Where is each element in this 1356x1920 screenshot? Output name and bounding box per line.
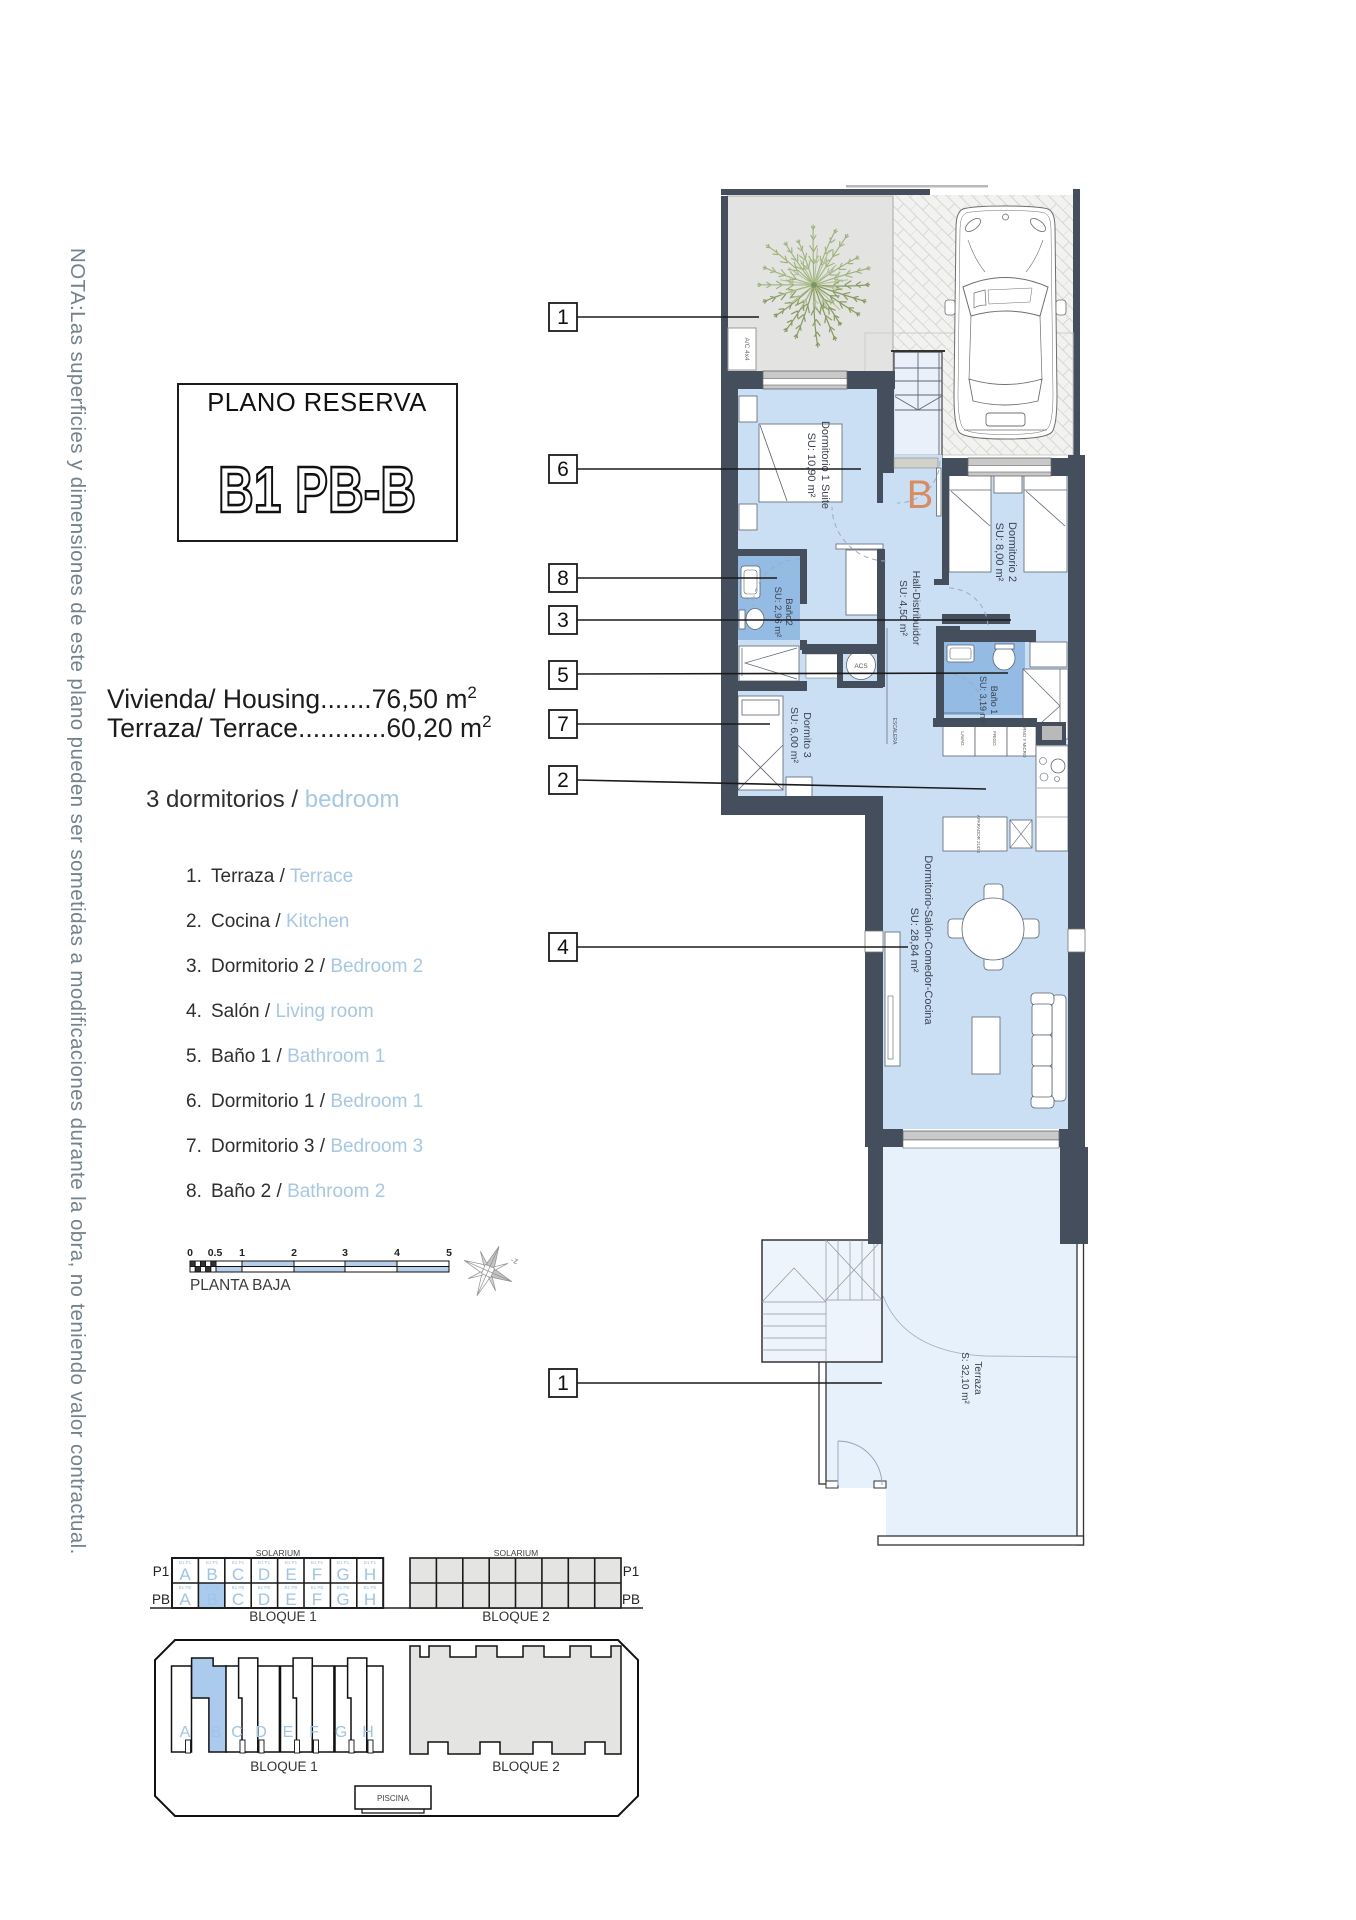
svg-text:SU: 10,90 m²: SU: 10,90 m²: [805, 433, 817, 498]
svg-text:Dormitorio 3 / Bedroom 3: Dormitorio 3 / Bedroom 3: [211, 1136, 423, 1157]
svg-text:5: 5: [557, 664, 569, 687]
svg-text:PLANTA BAJA: PLANTA BAJA: [190, 1277, 291, 1294]
svg-text:Dormitorio 2 / Bedroom 2: Dormitorio 2 / Bedroom 2: [211, 956, 423, 977]
svg-text:F: F: [309, 1724, 319, 1741]
svg-text:BLOQUE 2: BLOQUE 2: [482, 1609, 550, 1624]
svg-text:ESCALERA: ESCALERA: [891, 718, 897, 745]
svg-text:B1 PB: B1 PB: [311, 1585, 324, 1590]
svg-text:1: 1: [239, 1247, 245, 1259]
svg-text:8.: 8.: [186, 1181, 202, 1202]
svg-text:G: G: [335, 1724, 347, 1741]
svg-text:Terraza/ Terrace............60: Terraza/ Terrace............60,20 m2: [107, 712, 492, 743]
svg-text:3: 3: [342, 1247, 348, 1259]
svg-text:Terraza: Terraza: [972, 1361, 983, 1395]
svg-text:D: D: [258, 1590, 270, 1609]
svg-text:2: 2: [557, 769, 569, 792]
svg-text:SU: 8,00 m²: SU: 8,00 m²: [993, 523, 1005, 582]
svg-text:5.: 5.: [186, 1046, 202, 1067]
svg-text:Salón / Living room: Salón / Living room: [211, 1001, 374, 1022]
svg-text:SOLARIUM: SOLARIUM: [494, 1548, 538, 1558]
svg-text:B1 P1: B1 P1: [258, 1560, 271, 1565]
svg-text:E: E: [285, 1565, 296, 1584]
svg-text:B1 PB: B1 PB: [285, 1585, 298, 1590]
svg-text:G: G: [336, 1565, 349, 1584]
svg-text:H: H: [364, 1565, 376, 1584]
svg-text:-z: -z: [509, 1254, 520, 1266]
svg-text:Dormitorio-Salón-Comedor-Cocin: Dormitorio-Salón-Comedor-Cocina: [922, 855, 934, 1025]
svg-text:SU: 3,19 m²: SU: 3,19 m²: [978, 676, 988, 724]
svg-text:Vivienda/ Housing.......76,50: Vivienda/ Housing.......76,50 m2: [107, 683, 477, 714]
svg-text:B: B: [206, 1590, 217, 1609]
svg-text:E: E: [283, 1724, 294, 1741]
svg-text:1: 1: [557, 1372, 569, 1395]
svg-text:B: B: [907, 473, 934, 517]
svg-text:Baño 1: Baño 1: [989, 686, 999, 715]
svg-text:4: 4: [394, 1247, 400, 1259]
svg-text:2: 2: [291, 1247, 297, 1259]
svg-text:SU: 28,84 m²: SU: 28,84 m²: [908, 908, 920, 973]
svg-text:Baño 1 / Bathroom 1: Baño 1 / Bathroom 1: [211, 1046, 385, 1067]
svg-text:5: 5: [446, 1247, 452, 1259]
svg-text:D: D: [258, 1565, 270, 1584]
svg-text:Dormito 3: Dormito 3: [801, 712, 813, 758]
svg-text:3: 3: [557, 609, 569, 632]
svg-text:B1 P1: B1 P1: [206, 1560, 219, 1565]
svg-text:H: H: [364, 1590, 376, 1609]
svg-text:B1 PB: B1 PB: [206, 1585, 219, 1590]
svg-text:SU: 4,50 m²: SU: 4,50 m²: [897, 580, 909, 637]
svg-text:B: B: [211, 1724, 222, 1741]
svg-text:B1 P1: B1 P1: [232, 1560, 245, 1565]
svg-text:2.: 2.: [186, 911, 202, 932]
svg-text:Hall-Distribuidor: Hall-Distribuidor: [910, 571, 922, 646]
svg-text:BLOQUE 1: BLOQUE 1: [249, 1609, 317, 1624]
svg-text:Dormitorio 1 Suite: Dormitorio 1 Suite: [819, 421, 831, 509]
svg-text:A: A: [180, 1724, 191, 1741]
svg-text:1.: 1.: [186, 866, 202, 887]
svg-text:7: 7: [557, 713, 569, 736]
svg-text:6: 6: [557, 458, 569, 481]
svg-text:Baño2: Baño2: [783, 598, 794, 625]
svg-text:D: D: [255, 1724, 267, 1741]
svg-text:C: C: [232, 1590, 244, 1609]
svg-text:B1 P1: B1 P1: [364, 1560, 377, 1565]
svg-text:Cocina / Kitchen: Cocina / Kitchen: [211, 911, 349, 932]
svg-text:PB: PB: [152, 1592, 170, 1607]
svg-text:F: F: [312, 1565, 322, 1584]
svg-text:APARADOR 2UDS: APARADOR 2UDS: [976, 815, 981, 853]
svg-text:6.: 6.: [186, 1091, 202, 1112]
svg-text:SU: 2,96 m²: SU: 2,96 m²: [772, 587, 783, 638]
svg-text:0.5: 0.5: [208, 1247, 223, 1259]
svg-text:Baño 2 / Bathroom 2: Baño 2 / Bathroom 2: [211, 1181, 385, 1202]
svg-text:PISCINA: PISCINA: [377, 1794, 410, 1803]
svg-text:BLOQUE 2: BLOQUE 2: [492, 1759, 560, 1774]
svg-text:A: A: [179, 1590, 191, 1609]
svg-text:1: 1: [557, 306, 569, 329]
svg-text:8: 8: [557, 567, 569, 590]
svg-text:4.: 4.: [186, 1001, 202, 1022]
svg-text:SU: 6,00 m²: SU: 6,00 m²: [788, 707, 800, 764]
svg-text:0: 0: [187, 1247, 193, 1259]
svg-text:B1 PB-B: B1 PB-B: [218, 453, 416, 526]
svg-text:B1 PB: B1 PB: [258, 1585, 271, 1590]
svg-text:P1: P1: [623, 1564, 640, 1579]
svg-text:F: F: [312, 1590, 322, 1609]
svg-text:E: E: [285, 1590, 296, 1609]
svg-text:H: H: [362, 1724, 374, 1741]
svg-text:BLOQUE 1: BLOQUE 1: [250, 1759, 318, 1774]
svg-text:B1 P1: B1 P1: [337, 1560, 350, 1565]
svg-text:B1 P1: B1 P1: [311, 1560, 324, 1565]
svg-text:PB: PB: [622, 1592, 640, 1607]
svg-text:B1 PB: B1 PB: [179, 1585, 192, 1590]
svg-text:G: G: [336, 1590, 349, 1609]
svg-text:Dormitorio 2: Dormitorio 2: [1006, 522, 1018, 582]
svg-text:B1 PB: B1 PB: [232, 1585, 245, 1590]
svg-text:4: 4: [557, 936, 569, 959]
svg-text:B1 PB: B1 PB: [364, 1585, 377, 1590]
svg-text:3.: 3.: [186, 956, 202, 977]
svg-text:B: B: [206, 1565, 217, 1584]
svg-text:3 dormitorios / bedroom: 3 dormitorios / bedroom: [146, 786, 399, 813]
svg-text:SOLARIUM: SOLARIUM: [256, 1548, 300, 1558]
svg-text:C: C: [231, 1724, 243, 1741]
svg-text:NOTA:Las superficies y dimensi: NOTA:Las superficies y dimensiones de es…: [66, 248, 89, 1555]
svg-text:FRIGO.: FRIGO.: [992, 731, 997, 747]
svg-text:Terraza / Terrace: Terraza / Terrace: [211, 866, 353, 887]
svg-text:ACS: ACS: [854, 663, 868, 670]
svg-text:C: C: [232, 1565, 244, 1584]
svg-text:7.: 7.: [186, 1136, 202, 1157]
svg-text:B1 P1: B1 P1: [179, 1560, 192, 1565]
svg-text:LAVAD.: LAVAD.: [960, 731, 965, 746]
svg-text:A/C 4x4: A/C 4x4: [743, 337, 750, 361]
svg-text:HORNO Y MICRO: HORNO Y MICRO: [1022, 720, 1027, 758]
svg-text:PLANO RESERVA: PLANO RESERVA: [207, 389, 427, 417]
svg-text:B1 PB: B1 PB: [337, 1585, 350, 1590]
svg-text:S: 32,10 m²: S: 32,10 m²: [959, 1352, 970, 1404]
svg-text:A: A: [179, 1565, 191, 1584]
svg-text:Dormitorio 1 / Bedroom 1: Dormitorio 1 / Bedroom 1: [211, 1091, 423, 1112]
svg-text:P1: P1: [153, 1564, 170, 1579]
svg-text:B1 P1: B1 P1: [285, 1560, 298, 1565]
